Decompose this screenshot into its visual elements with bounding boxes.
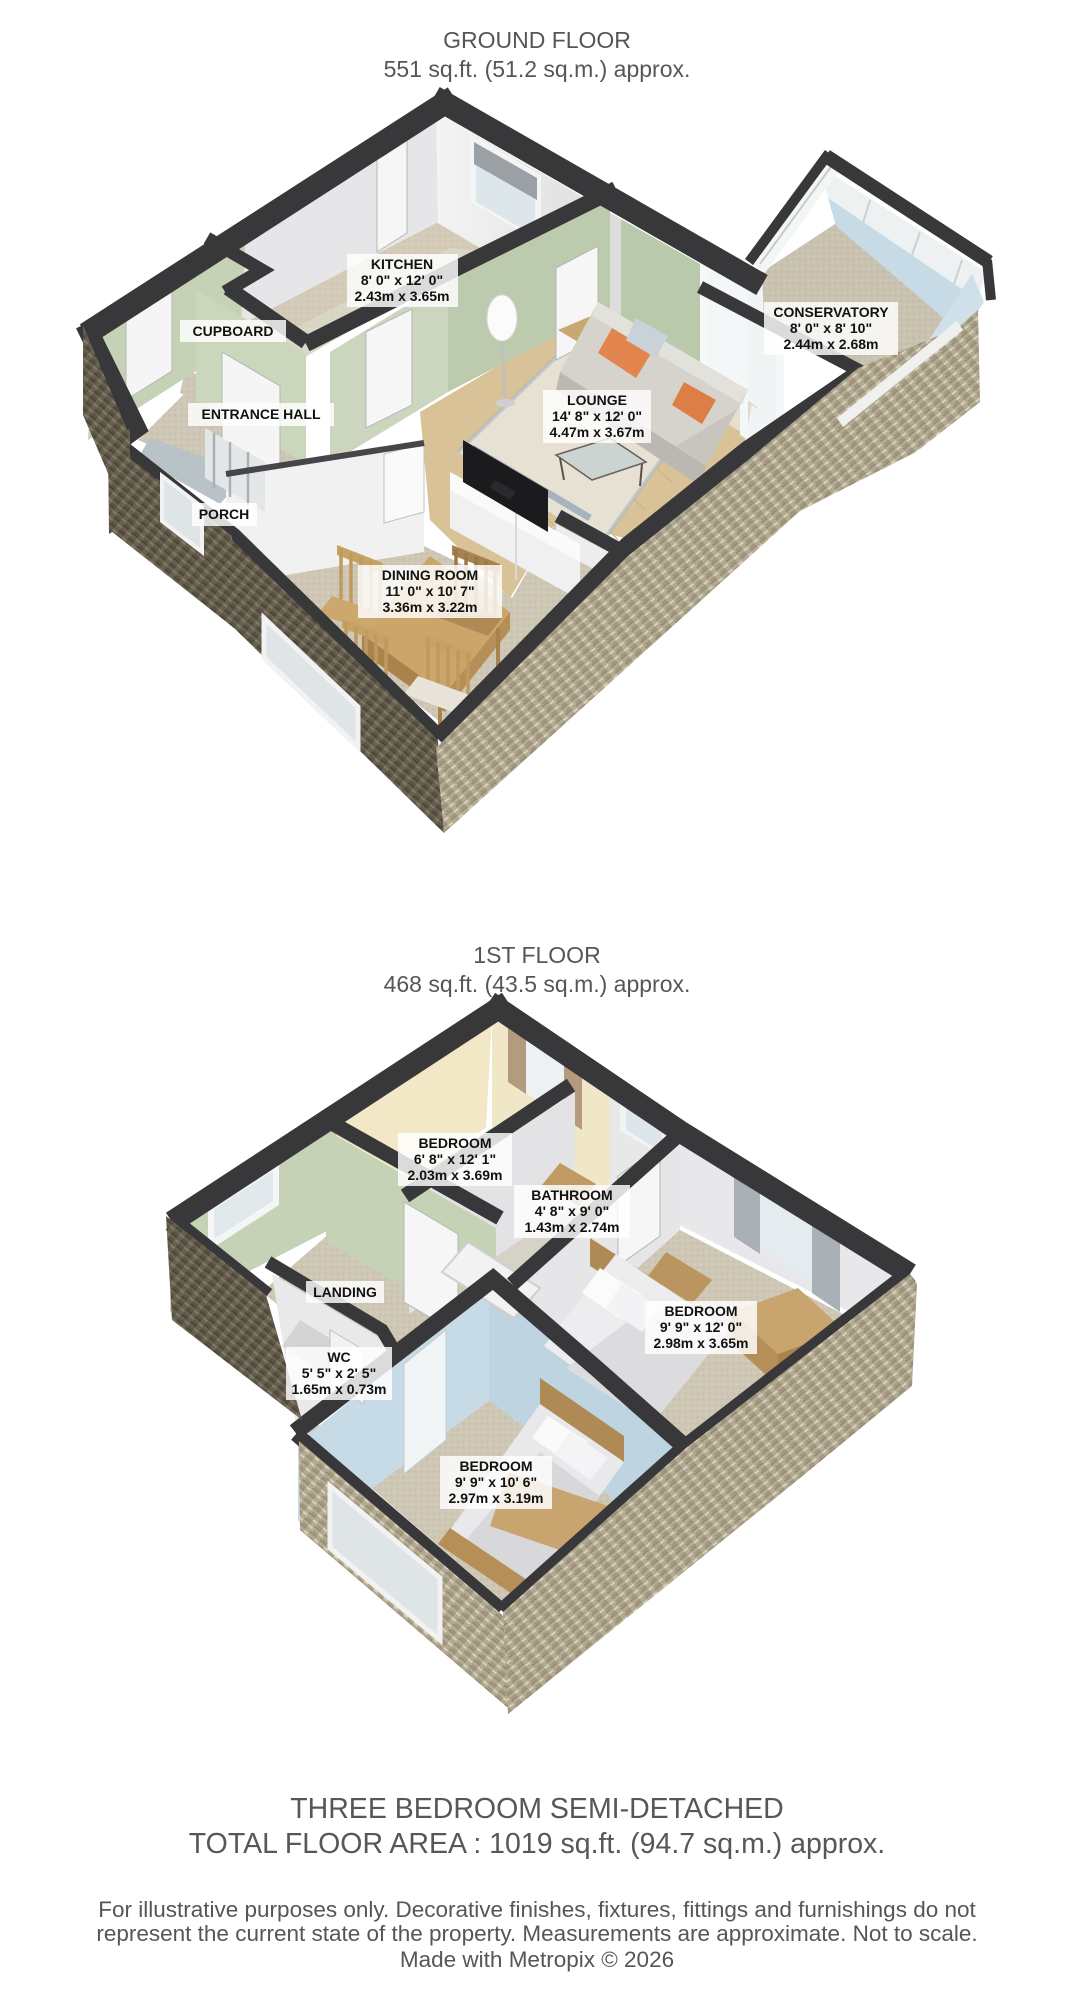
svg-text:3.36m x 3.22m: 3.36m x 3.22m: [383, 599, 478, 615]
svg-text:BEDROOM: BEDROOM: [459, 1458, 532, 1474]
svg-text:TOTAL FLOOR AREA : 1019 sq.ft.: TOTAL FLOOR AREA : 1019 sq.ft. (94.7 sq.…: [189, 1828, 885, 1860]
svg-text:2.43m x 3.65m: 2.43m x 3.65m: [355, 288, 450, 304]
svg-text:WC: WC: [327, 1349, 350, 1365]
svg-text:9' 9" x 12' 0": 9' 9" x 12' 0": [660, 1319, 742, 1335]
svg-text:CUPBOARD: CUPBOARD: [193, 323, 274, 339]
svg-text:2.44m x 2.68m: 2.44m x 2.68m: [784, 336, 879, 352]
svg-text:LOUNGE: LOUNGE: [567, 392, 627, 408]
svg-text:KITCHEN: KITCHEN: [371, 256, 433, 272]
svg-text:Made with Metropix © 2026: Made with Metropix © 2026: [400, 1947, 674, 1972]
svg-text:2.98m x 3.65m: 2.98m x 3.65m: [654, 1335, 749, 1351]
svg-text:represent the current state of: represent the current state of the prope…: [96, 1921, 977, 1946]
svg-text:4' 8" x 9' 0": 4' 8" x 9' 0": [535, 1203, 609, 1219]
svg-text:For illustrative purposes only: For illustrative purposes only. Decorati…: [98, 1897, 976, 1922]
svg-text:11' 0" x 10' 7": 11' 0" x 10' 7": [385, 583, 474, 599]
svg-text:BATHROOM: BATHROOM: [531, 1187, 612, 1203]
svg-text:14' 8" x 12' 0": 14' 8" x 12' 0": [552, 408, 642, 424]
svg-text:THREE BEDROOM SEMI-DETACHED: THREE BEDROOM SEMI-DETACHED: [290, 1793, 784, 1825]
svg-text:ENTRANCE HALL: ENTRANCE HALL: [202, 406, 321, 422]
svg-text:1ST FLOOR: 1ST FLOOR: [473, 942, 600, 968]
svg-text:CONSERVATORY: CONSERVATORY: [773, 304, 889, 320]
svg-text:551 sq.ft. (51.2 sq.m.) approx: 551 sq.ft. (51.2 sq.m.) approx.: [384, 56, 691, 82]
svg-text:2.03m x 3.69m: 2.03m x 3.69m: [408, 1167, 503, 1183]
svg-text:9' 9" x 10' 6": 9' 9" x 10' 6": [455, 1474, 537, 1490]
svg-text:5' 5" x 2' 5": 5' 5" x 2' 5": [302, 1365, 376, 1381]
svg-text:PORCH: PORCH: [199, 506, 250, 522]
svg-text:468 sq.ft. (43.5 sq.m.) approx: 468 sq.ft. (43.5 sq.m.) approx.: [384, 971, 691, 997]
svg-text:2.97m x 3.19m: 2.97m x 3.19m: [449, 1490, 544, 1506]
svg-text:8' 0" x 12' 0": 8' 0" x 12' 0": [361, 272, 443, 288]
svg-text:1.65m x 0.73m: 1.65m x 0.73m: [292, 1381, 387, 1397]
svg-text:6' 8" x 12' 1": 6' 8" x 12' 1": [414, 1151, 496, 1167]
svg-text:BEDROOM: BEDROOM: [418, 1135, 491, 1151]
svg-text:BEDROOM: BEDROOM: [664, 1303, 737, 1319]
svg-text:4.47m x 3.67m: 4.47m x 3.67m: [550, 424, 645, 440]
svg-text:GROUND FLOOR: GROUND FLOOR: [443, 27, 631, 53]
svg-text:LANDING: LANDING: [313, 1284, 377, 1300]
svg-text:8' 0" x 8' 10": 8' 0" x 8' 10": [790, 320, 872, 336]
svg-text:1.43m x 2.74m: 1.43m x 2.74m: [525, 1219, 620, 1235]
svg-text:DINING ROOM: DINING ROOM: [382, 567, 478, 583]
